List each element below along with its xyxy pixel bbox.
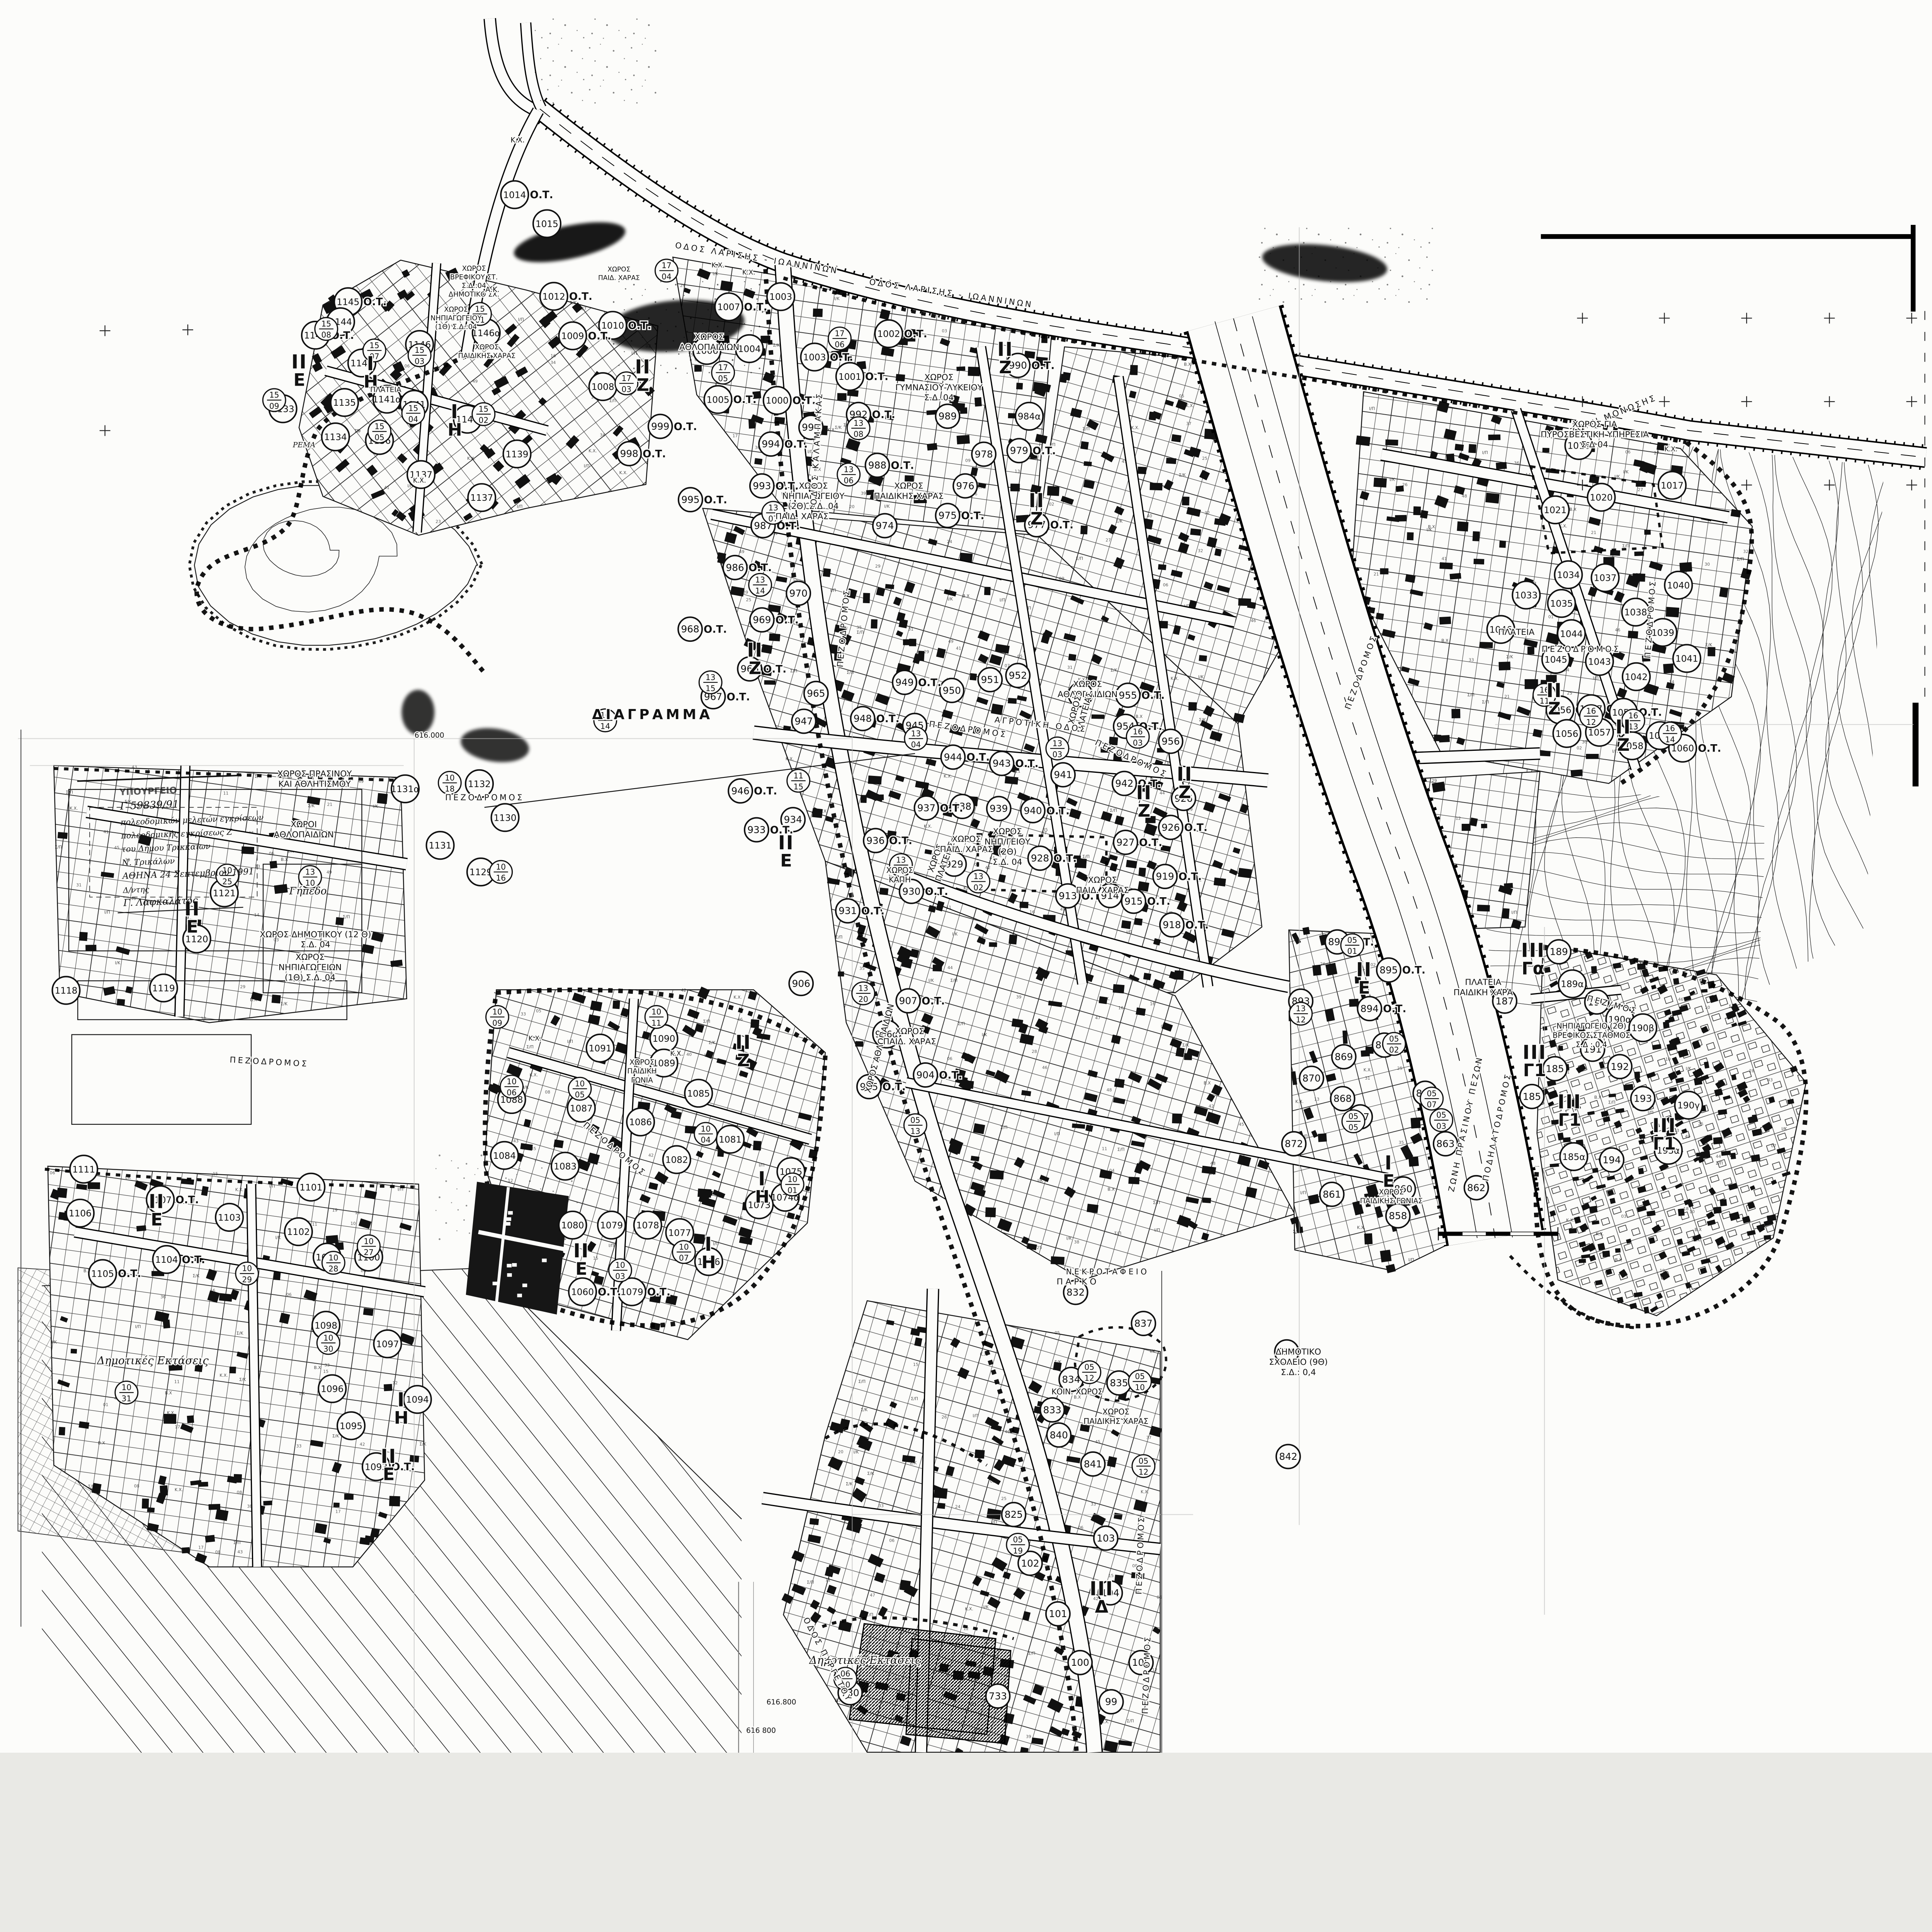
svg-text:Η: Η — [755, 1187, 770, 1207]
svg-text:1096: 1096 — [321, 1384, 344, 1394]
svg-text:Ι/Π: Ι/Π — [830, 588, 836, 593]
area-label: Κ.Χ. — [711, 262, 724, 269]
fraction-badge-13-10: 1310 — [299, 866, 321, 888]
ot-label: Ο.Τ. — [940, 803, 963, 814]
block-number-192: 192 — [1608, 1054, 1632, 1078]
ot-label: Ο.Τ. — [643, 448, 666, 460]
svg-text:28: 28 — [328, 1264, 338, 1274]
svg-text:Σ/Π: Σ/Π — [1000, 1125, 1008, 1130]
svg-text:1014: 1014 — [503, 190, 526, 200]
zone-label-ΙΙΖ: ΙΙΖ — [1136, 782, 1152, 821]
ot-label: Ο.Τ. — [363, 296, 386, 308]
block-number-1091: 1091 — [587, 1034, 614, 1062]
svg-text:1087: 1087 — [570, 1103, 593, 1114]
block-number-1102: 1102 — [285, 1218, 312, 1245]
svg-text:Κ.Χ.: Κ.Χ. — [742, 1231, 750, 1236]
fraction-badge-13-20: 1320 — [852, 982, 875, 1005]
svg-text:ΡΕΜΑ: ΡΕΜΑ — [293, 441, 315, 449]
svg-text:Σ/Κ: Σ/Κ — [709, 1040, 716, 1045]
svg-text:29: 29 — [240, 984, 245, 989]
ot-label: Ο.Τ. — [1185, 920, 1209, 931]
ot-label: Ο.Τ. — [939, 1070, 962, 1081]
svg-text:1091: 1091 — [589, 1043, 612, 1054]
block-number-1103: 1103 — [216, 1204, 243, 1231]
zone-label-ΙΙΖ: ΙΙΖ — [747, 639, 763, 678]
ot-label: Ο.Τ. — [1050, 519, 1073, 531]
svg-text:968: 968 — [681, 624, 699, 635]
ot-label: Ο.Τ. — [733, 394, 757, 406]
svg-text:11: 11 — [651, 1018, 662, 1027]
svg-text:14: 14 — [1665, 735, 1675, 744]
svg-text:ΠΕΖΟΔΡΟΜΟΣ: ΠΕΖΟΔΡΟΜΟΣ — [445, 793, 524, 802]
svg-text:1056: 1056 — [1556, 729, 1578, 739]
svg-text:10: 10 — [350, 1221, 356, 1226]
svg-text:05: 05 — [1135, 1372, 1145, 1381]
block-number-1033: 1033 — [1512, 581, 1540, 609]
sheet-frame-top — [1541, 234, 1915, 239]
ot-label: Ο.Τ. — [569, 291, 592, 303]
svg-text:03: 03 — [942, 328, 947, 333]
svg-text:Β.Χ: Β.Χ — [1570, 507, 1577, 512]
svg-text:05: 05 — [1138, 1456, 1148, 1466]
svg-text:Γ1: Γ1 — [1558, 1110, 1581, 1130]
svg-text:08: 08 — [1636, 572, 1641, 577]
block-number-185α: 185α — [1560, 1143, 1587, 1170]
svg-text:31: 31 — [76, 883, 82, 888]
svg-text:20: 20 — [849, 504, 855, 509]
svg-text:835: 835 — [1110, 1378, 1128, 1389]
svg-text:Κ.Χ.: Κ.Χ. — [70, 806, 78, 811]
svg-text:ΧΩΡΟΣ: ΧΩΡΟΣ — [886, 866, 913, 875]
svg-text:Ζ: Ζ — [737, 1050, 750, 1071]
svg-text:03: 03 — [615, 1272, 625, 1281]
svg-text:ΧΩΡΟΣ ΠΡΑΣΙΝΟΥ: ΧΩΡΟΣ ΠΡΑΣΙΝΟΥ — [277, 769, 352, 779]
area-label: Α.Κ. — [485, 286, 500, 294]
svg-text:Σ/Π: Σ/Π — [807, 1580, 814, 1585]
fraction-badge-13-03: 1303 — [1046, 737, 1069, 760]
block-number-1003: 1003 — [767, 283, 794, 310]
ot-label: Ο.Τ. — [744, 301, 767, 313]
svg-text:Ι/Κ: Ι/Κ — [1198, 674, 1204, 679]
svg-text:918: 918 — [1163, 919, 1181, 930]
svg-text:06: 06 — [507, 1088, 517, 1097]
svg-text:ΧΩΡΟΣ ΔΗΜΟΤΙΚΟΥ (12 Θ): ΧΩΡΟΣ ΔΗΜΟΤΙΚΟΥ (12 Θ) — [260, 930, 371, 939]
fraction-badge-10-16: 1016 — [490, 861, 512, 883]
svg-text:Σ/Π: Σ/Π — [1028, 1651, 1036, 1656]
ot-label: Ο.Τ. — [175, 1194, 199, 1206]
svg-text:31: 31 — [1365, 1076, 1370, 1081]
svg-text:24: 24 — [947, 539, 952, 544]
block-number-835: 835 — [1107, 1371, 1131, 1395]
svg-text:ΣΧΟΛΕΙΟ (9Θ): ΣΧΟΛΕΙΟ (9Θ) — [1269, 1357, 1328, 1367]
fraction-badge-05-01: 0501 — [1341, 934, 1364, 957]
svg-text:189α: 189α — [1561, 979, 1584, 990]
svg-text:969: 969 — [753, 614, 771, 626]
svg-text:09: 09 — [492, 1018, 502, 1027]
svg-text:06: 06 — [889, 1538, 895, 1543]
svg-text:975: 975 — [939, 510, 957, 521]
svg-text:05: 05 — [1349, 1122, 1359, 1132]
svg-text:Ι/Π: Ι/Π — [135, 1324, 141, 1329]
svg-text:ΧΩΡΟΣ: ΧΩΡΟΣ — [894, 481, 923, 491]
svg-text:Σ.Δ.:04: Σ.Δ.:04 — [462, 282, 486, 290]
svg-text:05: 05 — [1349, 1112, 1359, 1121]
svg-text:04: 04 — [662, 272, 672, 281]
svg-text:949: 949 — [895, 677, 913, 688]
svg-text:03: 03 — [1621, 1214, 1626, 1219]
fraction-badge-10-31: 1031 — [115, 1381, 138, 1404]
svg-text:1060: 1060 — [571, 1287, 594, 1298]
svg-text:1137: 1137 — [470, 493, 493, 503]
svg-text:25: 25 — [222, 877, 232, 886]
svg-text:1085: 1085 — [687, 1088, 710, 1099]
svg-text:10: 10 — [701, 1124, 711, 1133]
zone-label-ΙΙΕ: ΙΙΕ — [573, 1240, 590, 1279]
svg-text:25: 25 — [1202, 456, 1207, 461]
svg-text:05: 05 — [1436, 1111, 1446, 1120]
svg-text:1131: 1131 — [429, 840, 452, 851]
svg-text:Κ.Χ.: Κ.Χ. — [1101, 1719, 1109, 1724]
svg-text:42: 42 — [681, 988, 686, 993]
grid-coordinate-label: 616.800 — [767, 1698, 796, 1706]
svg-text:03: 03 — [1692, 1237, 1697, 1242]
svg-text:956: 956 — [1162, 736, 1180, 747]
area-label: Δημοτικές Εκτάσεις — [97, 1354, 209, 1367]
svg-text:46: 46 — [738, 1017, 743, 1022]
road-label: ΠΕΖΟΔΡΟΜΟΣ — [1542, 645, 1621, 654]
svg-text:Σ/Κ: Σ/Κ — [773, 343, 780, 348]
svg-text:16: 16 — [551, 353, 556, 358]
svg-text:16: 16 — [1133, 727, 1143, 736]
svg-text:41: 41 — [384, 485, 389, 490]
svg-text:12: 12 — [1138, 1468, 1148, 1477]
svg-text:1021: 1021 — [1544, 505, 1566, 515]
fraction-badge-10-28: 1028 — [322, 1252, 345, 1274]
svg-text:ΧΩΡΟΣ: ΧΩΡΟΣ — [475, 343, 499, 351]
svg-text:185: 185 — [1546, 1063, 1564, 1074]
svg-text:09: 09 — [269, 401, 279, 411]
svg-text:25: 25 — [1001, 1496, 1007, 1501]
fraction-badge-15-05: 1505 — [368, 420, 391, 443]
svg-text:Σ/Κ: Σ/Κ — [1179, 473, 1186, 478]
svg-text:Β.Χ: Β.Χ — [963, 594, 970, 599]
svg-text:17: 17 — [662, 261, 672, 270]
svg-text:Ι/Π: Ι/Π — [1000, 597, 1005, 602]
svg-text:37: 37 — [1146, 1435, 1151, 1440]
svg-text:Σ/Κ: Σ/Κ — [1111, 668, 1117, 673]
block-number-1101: 1101 — [297, 1173, 325, 1201]
svg-text:Ζ: Ζ — [999, 357, 1012, 378]
svg-text:ΧΩΡΟΣ: ΧΩΡΟΣ — [924, 373, 953, 383]
svg-text:ΠΑΙΔ. ΧΑΡΑΣ: ΠΑΙΔ. ΧΑΡΑΣ — [1076, 886, 1129, 895]
svg-text:ΠΑΙΔΙΚΗ ΧΑΡΑ: ΠΑΙΔΙΚΗ ΧΑΡΑ — [1454, 988, 1513, 997]
svg-text:27: 27 — [336, 1465, 342, 1470]
svg-text:15: 15 — [269, 390, 279, 400]
block-number-906: 906 — [789, 971, 813, 995]
svg-text:44: 44 — [947, 965, 953, 970]
fraction-badge-15-02: 1502 — [472, 403, 495, 425]
svg-text:10: 10 — [1665, 1057, 1671, 1062]
svg-text:ΧΩΡΟΣ: ΧΩΡΟΣ — [462, 264, 486, 272]
ot-label: Ο.Τ. — [918, 677, 941, 689]
svg-text:27: 27 — [364, 1248, 374, 1257]
svg-text:18: 18 — [1683, 1206, 1689, 1211]
block-number-1040: 1040 — [1665, 571, 1692, 599]
svg-text:Σ/Π: Σ/Π — [911, 1396, 918, 1401]
svg-text:48: 48 — [1210, 1161, 1216, 1166]
svg-text:42: 42 — [648, 1153, 654, 1158]
svg-text:ΧΩΡΟΣ: ΧΩΡΟΣ — [1073, 680, 1102, 689]
svg-text:Σ/Π: Σ/Π — [835, 935, 843, 940]
svg-text:Β.Χ: Β.Χ — [1204, 1081, 1211, 1086]
ot-label: Ο.Τ. — [182, 1254, 205, 1266]
svg-text:ΠΑΙΔ. ΧΑΡΑΣ: ΠΑΙΔ. ΧΑΡΑΣ — [883, 1037, 936, 1046]
svg-text:Β.Χ: Β.Χ — [1615, 1258, 1622, 1263]
fraction-badge-17-04: 1704 — [655, 259, 678, 282]
svg-text:ΓΩΝΙΑ: ΓΩΝΙΑ — [631, 1076, 653, 1084]
area-label: ΠΛΑΤΕΙΑ — [370, 386, 401, 394]
svg-text:102: 102 — [1021, 1558, 1039, 1569]
ot-label: Ο.Τ. — [1402, 965, 1425, 976]
svg-text:10: 10 — [445, 773, 455, 782]
svg-text:Ι/Κ: Ι/Κ — [704, 1053, 710, 1058]
svg-text:ΠΛΑΤΕΙΑ: ΠΛΑΤΕΙΑ — [1465, 978, 1501, 987]
block-number-1017: 1017 — [1658, 471, 1686, 499]
svg-text:Σ/Π: Σ/Π — [1482, 700, 1489, 705]
ot-label: Ο.Τ. — [872, 409, 895, 421]
svg-text:1097: 1097 — [376, 1339, 399, 1349]
block-number-1056: 1056 — [1553, 720, 1580, 747]
svg-text:Κ.Χ.: Κ.Χ. — [1357, 1225, 1365, 1230]
svg-text:Σ/Π: Σ/Π — [1117, 1147, 1125, 1152]
svg-text:1000: 1000 — [766, 396, 789, 406]
ot-label: Ο.Τ. — [883, 1082, 906, 1093]
svg-text:926: 926 — [1162, 822, 1180, 833]
block-number-1042: 1042 — [1622, 663, 1650, 690]
svg-text:11: 11 — [793, 771, 803, 780]
ot-label: Ο.Τ. — [793, 395, 816, 407]
svg-text:ΧΩΡΟΣ: ΧΩΡΟΣ — [296, 952, 325, 962]
svg-text:Κ.Χ.: Κ.Χ. — [924, 824, 932, 829]
svg-text:ΑΘΛΟΠΑΙΔΙΩΝ: ΑΘΛΟΠΑΙΔΙΩΝ — [679, 342, 739, 352]
svg-text:15: 15 — [415, 345, 425, 355]
svg-text:833: 833 — [1043, 1404, 1061, 1415]
svg-text:09: 09 — [965, 458, 971, 463]
svg-text:1106: 1106 — [69, 1208, 92, 1219]
svg-text:Ζ: Ζ — [1179, 782, 1191, 802]
ot-label: Ο.Τ. — [704, 494, 727, 506]
ot-label: Ο.Τ. — [1015, 758, 1038, 770]
svg-text:15: 15 — [408, 403, 418, 413]
svg-text:ΧΩΡΟΣ: ΧΩΡΟΣ — [629, 1058, 654, 1066]
svg-text:Ι/Π: Ι/Π — [609, 1243, 614, 1248]
ot-label: Ο.Τ. — [961, 510, 984, 522]
zone-label-ΙΙΖ: ΙΙΖ — [997, 338, 1014, 378]
svg-text:03: 03 — [1436, 1121, 1446, 1131]
svg-text:24: 24 — [955, 1504, 961, 1509]
svg-text:47: 47 — [1095, 1015, 1100, 1020]
svg-text:27: 27 — [1638, 487, 1643, 492]
fraction-badge-17-06: 1706 — [828, 327, 851, 350]
block-number-872: 872 — [1282, 1132, 1306, 1156]
svg-text:1012: 1012 — [543, 291, 565, 302]
block-number-1081: 1081 — [716, 1126, 744, 1153]
svg-text:32: 32 — [1198, 548, 1203, 553]
svg-text:43: 43 — [237, 1549, 243, 1554]
block-number-1119: 1119 — [150, 974, 177, 1002]
svg-text:Σ.Δ. 04: Σ.Δ. 04 — [924, 393, 954, 403]
scanned-cadastral-map-page: Ι/ΠΙ/ΠΣ/ΠΣ/ΚΙ/ΠΚ.Χ.Κ.Χ.Ι/ΠΒ.ΧΚ.Χ.Β.ΧΙ/ΠΚ… — [0, 0, 1932, 1753]
svg-text:ΠΛΑΤΕΙΑ: ΠΛΑΤΕΙΑ — [370, 386, 401, 394]
svg-text:Γα: Γα — [1522, 958, 1544, 978]
svg-text:10: 10 — [507, 1077, 517, 1086]
svg-text:ΝΗΠΙΑΓΩΓΕΙΩΝ: ΝΗΠΙΑΓΩΓΕΙΩΝ — [279, 963, 342, 972]
svg-text:25: 25 — [1397, 1066, 1403, 1071]
svg-text:Σ/Π: Σ/Π — [1076, 556, 1083, 561]
svg-text:13: 13 — [896, 855, 906, 865]
svg-text:ΚΟΙΝ. ΧΩΡΟΣ: ΚΟΙΝ. ΧΩΡΟΣ — [1051, 1387, 1103, 1396]
svg-text:25: 25 — [746, 597, 752, 602]
svg-text:19: 19 — [1660, 1268, 1665, 1273]
svg-text:Σ/Π: Σ/Π — [1110, 808, 1117, 813]
svg-text:ΒΡΕΦΙΚΟΣ ΣΤΑΘΜΟΣ: ΒΡΕΦΙΚΟΣ ΣΤΑΘΜΟΣ — [1553, 1031, 1630, 1040]
ot-label: Ο.Τ. — [628, 320, 651, 332]
svg-text:05: 05 — [718, 374, 728, 383]
fraction-badge-10-07: 1007 — [672, 1241, 695, 1264]
svg-text:989: 989 — [939, 411, 957, 422]
svg-text:999: 999 — [651, 421, 669, 432]
svg-text:13: 13 — [1053, 739, 1063, 748]
block-number-1037: 1037 — [1592, 564, 1619, 592]
ot-label: Ο.Τ. — [1179, 871, 1202, 883]
block-number-190β: 190β — [1629, 1014, 1656, 1041]
block-number-858: 858 — [1386, 1204, 1410, 1228]
svg-text:1098: 1098 — [315, 1320, 337, 1331]
svg-text:1003: 1003 — [803, 352, 826, 363]
svg-text:ΠΑΙΔ. ΧΑΡΑΣ: ΠΑΙΔ. ΧΑΡΑΣ — [776, 512, 828, 521]
svg-text:(1Θ) Σ.Δ. 04: (1Θ) Σ.Δ. 04 — [285, 973, 335, 983]
svg-text:Σ/Π: Σ/Π — [1716, 1161, 1723, 1166]
block-number-1084: 1084 — [491, 1142, 518, 1169]
svg-text:995: 995 — [681, 494, 699, 505]
svg-text:Ι/Π: Ι/Π — [759, 1163, 765, 1168]
svg-text:05: 05 — [1054, 1330, 1060, 1335]
svg-text:1101: 1101 — [299, 1182, 322, 1193]
svg-text:Β.Χ: Β.Χ — [281, 857, 288, 862]
zone-label-ΙΙΖ: ΙΙΖ — [1177, 763, 1193, 803]
svg-text:1139: 1139 — [506, 449, 529, 459]
svg-text:ΧΩΡΟΣ: ΧΩΡΟΣ — [695, 332, 724, 342]
svg-text:979: 979 — [1010, 445, 1028, 456]
fraction-badge-10-01: 1001 — [781, 1173, 804, 1196]
block-number-1044: 1044 — [1558, 620, 1585, 647]
svg-text:Ι/Κ: Ι/Κ — [1686, 1066, 1692, 1071]
svg-text:07: 07 — [679, 1253, 689, 1263]
svg-text:Β.Χ: Β.Χ — [314, 1365, 321, 1370]
svg-text:25: 25 — [1567, 690, 1572, 696]
svg-text:998: 998 — [620, 448, 638, 459]
svg-text:46: 46 — [1678, 997, 1684, 1002]
svg-text:15: 15 — [213, 1171, 218, 1176]
svg-text:934: 934 — [784, 814, 802, 825]
svg-text:1105: 1105 — [91, 1269, 114, 1279]
svg-text:Β.Χ: Β.Χ — [1441, 638, 1449, 643]
svg-text:858: 858 — [1389, 1210, 1407, 1221]
fraction-badge-13-14: 1314 — [749, 573, 772, 596]
svg-text:06: 06 — [1163, 582, 1168, 587]
svg-text:45: 45 — [531, 1146, 536, 1151]
svg-text:12: 12 — [1296, 1015, 1306, 1024]
svg-text:Ν Ε Κ Ρ Ο Τ Α Φ Ε Ι Ο: Ν Ε Κ Ρ Ο Τ Α Φ Ε Ι Ο — [1066, 1267, 1147, 1276]
block-number-965: 965 — [804, 682, 828, 706]
svg-text:45: 45 — [114, 845, 119, 850]
svg-text:40: 40 — [1147, 514, 1152, 519]
svg-text:Ι/Κ: Ι/Κ — [115, 960, 121, 965]
svg-text:44: 44 — [1160, 791, 1165, 796]
svg-text:907: 907 — [899, 995, 917, 1007]
svg-text:ΠΥΡΟΣΒΕΣΤΙΚΗ ΥΠΗΡΕΣΙΑ: ΠΥΡΟΣΒΕΣΤΙΚΗ ΥΠΗΡΕΣΙΑ — [1541, 430, 1649, 439]
ot-label: Ο.Τ. — [647, 1286, 670, 1298]
road-label: ΠΕΖΟΔΡΟΜΟΣ — [445, 793, 524, 802]
svg-text:Ι/Κ: Ι/Κ — [884, 504, 890, 509]
ot-label: Ο.Τ. — [776, 615, 799, 626]
svg-text:841: 841 — [1084, 1458, 1102, 1469]
svg-text:15: 15 — [321, 319, 332, 328]
svg-text:Κ.Χ.: Κ.Χ. — [1102, 996, 1110, 1001]
svg-text:Ι/Π: Ι/Π — [1054, 1131, 1060, 1136]
svg-text:11: 11 — [825, 1578, 831, 1583]
svg-text:ΝΗΠΙΑΓΩΓΕΙΟΥ: ΝΗΠΙΑΓΩΓΕΙΟΥ — [430, 314, 481, 322]
svg-text:40: 40 — [686, 1052, 692, 1057]
svg-text:35: 35 — [857, 625, 862, 630]
svg-text:Σ/Κ: Σ/Κ — [861, 1407, 868, 1412]
svg-text:1043: 1043 — [1588, 656, 1611, 667]
block-number-101: 101 — [1046, 1602, 1070, 1626]
area-label: Κ.Χ. — [510, 136, 525, 144]
svg-text:Σ/Π: Σ/Π — [1082, 854, 1090, 859]
svg-text:08: 08 — [321, 330, 332, 340]
svg-text:1017: 1017 — [1661, 481, 1684, 491]
svg-text:08: 08 — [215, 1549, 221, 1554]
area-label: ΧΩΡΟΣΠΑΙΔΙΚΗΓΩΝΙΑ — [627, 1058, 656, 1084]
svg-text:33: 33 — [1091, 1502, 1096, 1507]
svg-text:ΧΩΡΟΣ: ΧΩΡΟΣ — [895, 1027, 924, 1036]
svg-text:05: 05 — [1347, 935, 1357, 945]
area-label: Κ.Χ. — [670, 1050, 683, 1058]
svg-text:Ι/Π: Ι/Π — [1126, 930, 1132, 935]
svg-text:Σ/Π: Σ/Π — [847, 670, 854, 675]
ot-label: Ο.Τ. — [784, 439, 808, 450]
svg-text:Ι/Κ: Ι/Κ — [834, 296, 840, 301]
block-number-1035: 1035 — [1548, 590, 1575, 617]
svg-text:31: 31 — [1067, 665, 1073, 670]
svg-text:21: 21 — [1374, 571, 1379, 577]
svg-text:Ε: Ε — [186, 917, 198, 937]
svg-text:948: 948 — [854, 713, 872, 724]
svg-text:10: 10 — [242, 1264, 252, 1273]
svg-text:30: 30 — [1704, 562, 1710, 567]
svg-text:Σ/Π: Σ/Π — [55, 845, 62, 850]
svg-text:20: 20 — [1209, 1171, 1215, 1176]
svg-text:1010: 1010 — [601, 320, 624, 331]
svg-text:Γ1: Γ1 — [1653, 1133, 1676, 1154]
svg-text:825: 825 — [1005, 1509, 1023, 1520]
svg-text:06: 06 — [1625, 449, 1631, 454]
svg-text:14: 14 — [600, 722, 611, 731]
svg-text:Η: Η — [447, 420, 462, 440]
svg-text:Κ.Χ.: Κ.Χ. — [413, 477, 426, 485]
svg-text:942: 942 — [1115, 778, 1133, 789]
